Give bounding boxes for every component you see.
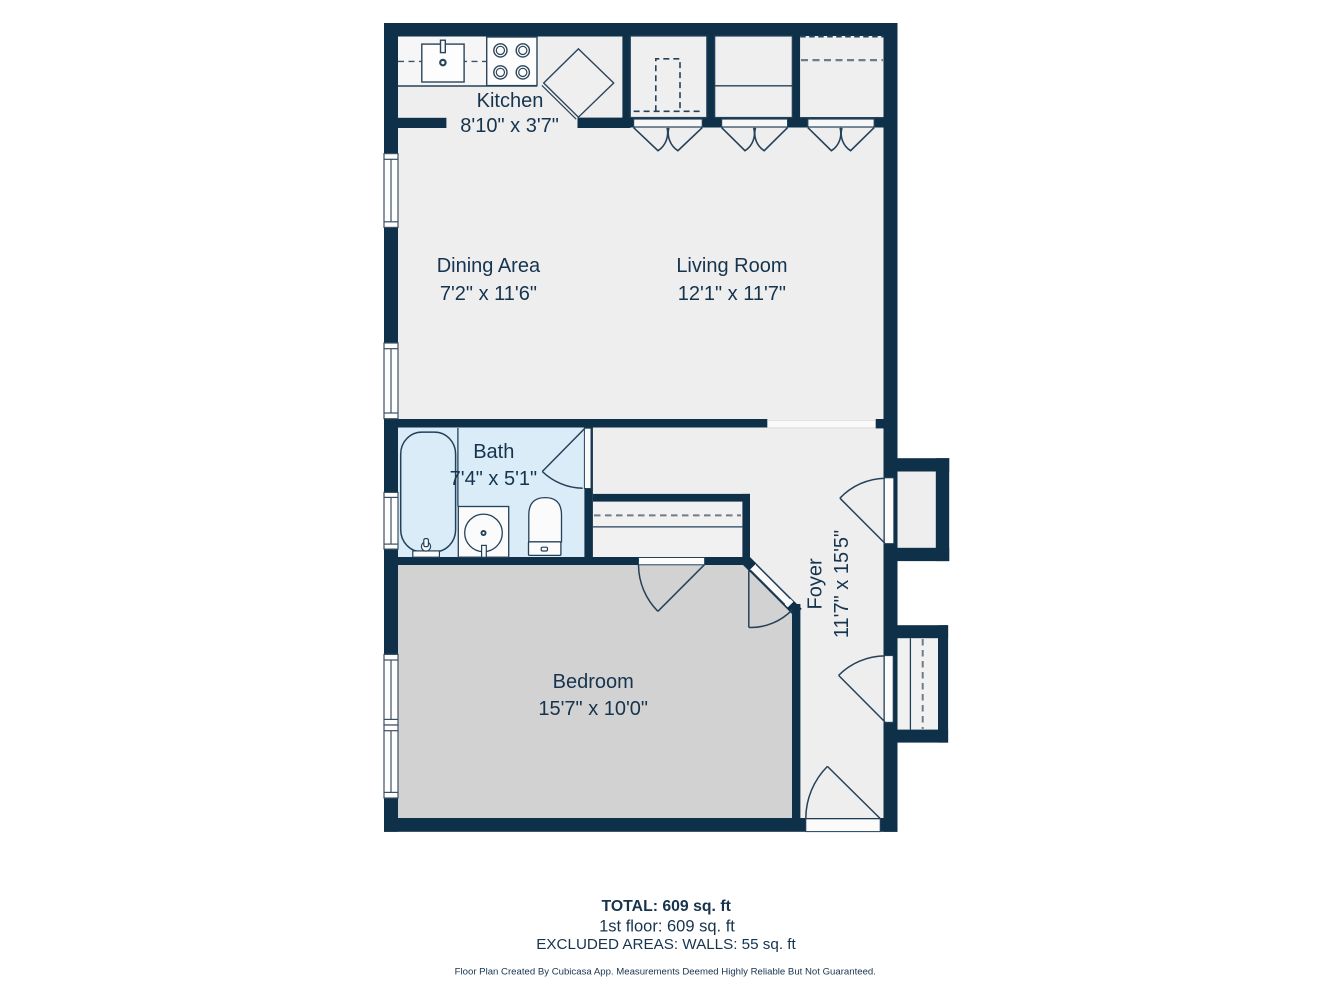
svg-text:1st floor: 609 sq. ft: 1st floor: 609 sq. ft bbox=[599, 918, 735, 936]
svg-text:15'7" x 10'0": 15'7" x 10'0" bbox=[538, 698, 648, 720]
svg-text:Bath: Bath bbox=[473, 441, 514, 463]
svg-text:7'4" x 5'1": 7'4" x 5'1" bbox=[450, 468, 537, 490]
svg-text:7'2" x 11'6": 7'2" x 11'6" bbox=[440, 283, 537, 305]
svg-text:Foyer: Foyer bbox=[805, 558, 827, 609]
svg-text:11'7" x 15'5": 11'7" x 15'5" bbox=[831, 530, 853, 638]
svg-text:EXCLUDED AREAS: WALLS: 55 sq.: EXCLUDED AREAS: WALLS: 55 sq. ft bbox=[536, 936, 796, 953]
svg-text:8'10" x 3'7": 8'10" x 3'7" bbox=[460, 115, 559, 137]
svg-text:Floor Plan Created By Cubicasa: Floor Plan Created By Cubicasa App. Meas… bbox=[455, 967, 876, 978]
svg-text:Kitchen: Kitchen bbox=[477, 90, 544, 112]
svg-text:12'1" x 11'7": 12'1" x 11'7" bbox=[678, 283, 786, 305]
svg-text:Living Room: Living Room bbox=[676, 255, 787, 277]
svg-text:TOTAL: 609 sq. ft: TOTAL: 609 sq. ft bbox=[602, 898, 732, 915]
svg-text:Bedroom: Bedroom bbox=[553, 671, 634, 693]
svg-text:Dining Area: Dining Area bbox=[437, 255, 541, 277]
